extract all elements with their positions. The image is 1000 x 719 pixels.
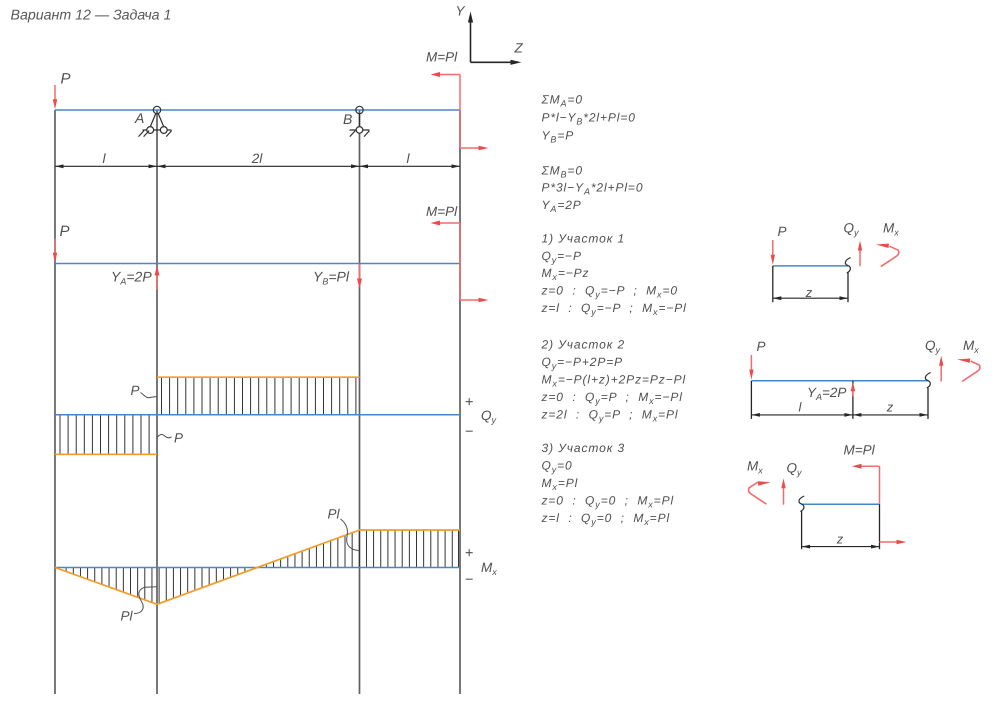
svg-text:Mx=Pl: Mx=Pl (542, 476, 579, 492)
svg-text:Z: Z (514, 41, 524, 56)
svg-text:Pl: Pl (328, 507, 341, 522)
svg-text:Вариант 12 — Задача 1: Вариант 12 — Задача 1 (11, 8, 172, 24)
svg-text:A: A (134, 110, 144, 126)
svg-text:+: + (465, 394, 473, 410)
svg-text:z=0 : Qy=0 ; Mx=Pl: z=0 : Qy=0 ; Mx=Pl (541, 493, 675, 509)
svg-text:z=2l : Qy=P ; Mx=Pl: z=2l : Qy=P ; Mx=Pl (541, 407, 679, 423)
svg-text:z: z (805, 285, 813, 300)
svg-text:P: P (757, 339, 766, 354)
svg-text:YA=2P: YA=2P (807, 385, 846, 402)
svg-text:−: − (465, 424, 473, 440)
svg-text:P: P (131, 383, 140, 398)
svg-text:M=Pl: M=Pl (844, 443, 876, 458)
svg-text:z=l : Qy=0 ; Mx=Pl: z=l : Qy=0 ; Mx=Pl (541, 511, 671, 527)
svg-text:z=l : Qy=−P ; Mx=−Pl: z=l : Qy=−P ; Mx=−Pl (541, 301, 687, 317)
svg-text:3) Участок 3: 3) Участок 3 (542, 441, 626, 455)
svg-text:P: P (61, 71, 71, 88)
svg-text:YB=P: YB=P (542, 129, 575, 145)
svg-text:M=Pl: M=Pl (426, 204, 458, 219)
svg-text:P*l−YB*2l+Pl=0: P*l−YB*2l+Pl=0 (542, 111, 636, 127)
svg-text:Pl: Pl (121, 609, 134, 624)
svg-text:z=0 : Qy=P ; Mx=−Pl: z=0 : Qy=P ; Mx=−Pl (541, 390, 683, 406)
svg-text:Mx=−P(l+z)+2Pz=Pz−Pl: Mx=−P(l+z)+2Pz=Pz−Pl (542, 373, 687, 389)
svg-text:P: P (174, 431, 183, 446)
svg-text:1) Участок 1: 1) Участок 1 (542, 231, 626, 245)
svg-text:P: P (60, 223, 70, 240)
svg-text:2l: 2l (251, 151, 264, 166)
svg-text:+: + (465, 545, 473, 561)
svg-text:2) Участок 2: 2) Участок 2 (541, 338, 626, 352)
svg-text:YB=Pl: YB=Pl (313, 269, 350, 287)
svg-text:−: − (465, 572, 473, 588)
svg-text:z: z (886, 400, 894, 415)
svg-text:YA=2P: YA=2P (111, 269, 152, 287)
svg-text:Qy=−P: Qy=−P (542, 249, 582, 265)
svg-text:P: P (778, 224, 787, 239)
svg-text:P*3l−YA*2l+Pl=0: P*3l−YA*2l+Pl=0 (542, 181, 644, 197)
svg-text:M=Pl: M=Pl (426, 50, 458, 65)
svg-text:Y: Y (456, 4, 466, 19)
svg-text:Qy=0: Qy=0 (542, 459, 573, 475)
svg-text:YA=2P: YA=2P (542, 198, 582, 214)
svg-text:B: B (343, 111, 352, 127)
svg-text:z: z (836, 532, 844, 547)
svg-text:Mx=−Pz: Mx=−Pz (542, 266, 590, 282)
